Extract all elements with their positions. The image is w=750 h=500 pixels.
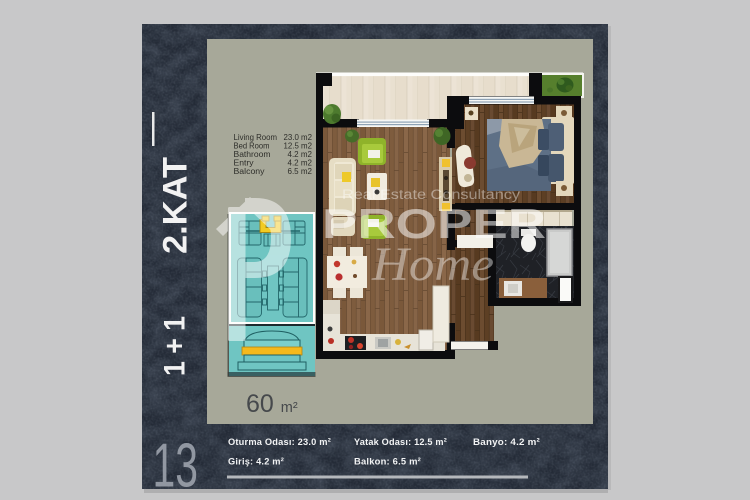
svg-text:Banyo: 4.2 m²: Banyo: 4.2 m²	[473, 437, 540, 447]
svg-text:1 + 1: 1 + 1	[159, 316, 192, 376]
svg-text:13: 13	[153, 431, 199, 500]
svg-text:Giriş: 4.2 m²: Giriş: 4.2 m²	[228, 457, 284, 467]
svg-text:6.5 m2: 6.5 m2	[288, 166, 313, 176]
svg-text:2.KAT: 2.KAT	[157, 157, 195, 254]
svg-text:Home: Home	[371, 238, 494, 291]
svg-text:Balcony: Balcony	[234, 166, 266, 176]
svg-text:Balkon: 6.5 m²: Balkon: 6.5 m²	[354, 457, 421, 467]
svg-text:Yatak Odası: 12.5 m²: Yatak Odası: 12.5 m²	[354, 437, 447, 447]
svg-text:Oturma Odası: 23.0 m²: Oturma Odası: 23.0 m²	[228, 437, 331, 447]
